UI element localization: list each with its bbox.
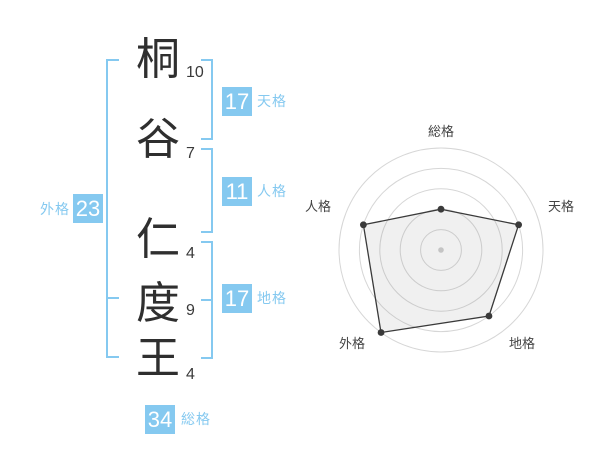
radar-axis-label-soukaku: 総格 [426,125,456,139]
name-char-2: 谷 [135,117,181,163]
gaikaku-bracket [106,59,119,358]
seimei-handan-result: 桐 谷 仁 度 王 10 7 4 9 4 17 天格 11 人格 17 地格 2… [0,0,600,470]
chikaku-bracket-mid-tick [201,299,213,301]
radar-axis-label-tenkaku: 天格 [546,200,576,214]
name-char-3: 仁 [135,217,181,263]
radar-axis-label-gaikaku: 外格 [337,337,367,351]
name-char-5: 王 [135,336,181,382]
soukaku-value-badge: 34 [145,405,175,434]
jinkaku-label: 人格 [257,184,287,199]
radar-chart [331,140,551,360]
name-char-4: 度 [135,281,181,327]
name-char-1: 桐 [135,37,181,83]
chikaku-value-badge: 17 [222,284,252,313]
gaikaku-bracket-mid-tick [106,297,119,299]
jinkaku-value-badge: 11 [222,177,252,206]
stroke-count-5: 4 [186,366,208,383]
tenkaku-bracket [201,59,213,140]
chikaku-label: 地格 [257,291,287,306]
radar-axis-label-jinkaku: 人格 [303,200,333,214]
tenkaku-value-badge: 17 [222,87,252,116]
radar-axis-label-chikaku: 地格 [507,337,537,351]
gaikaku-value-badge: 23 [73,194,103,223]
gaikaku-label: 外格 [40,202,70,217]
jinkaku-bracket [201,148,213,233]
soukaku-label: 総格 [181,412,211,427]
tenkaku-label: 天格 [257,94,287,109]
